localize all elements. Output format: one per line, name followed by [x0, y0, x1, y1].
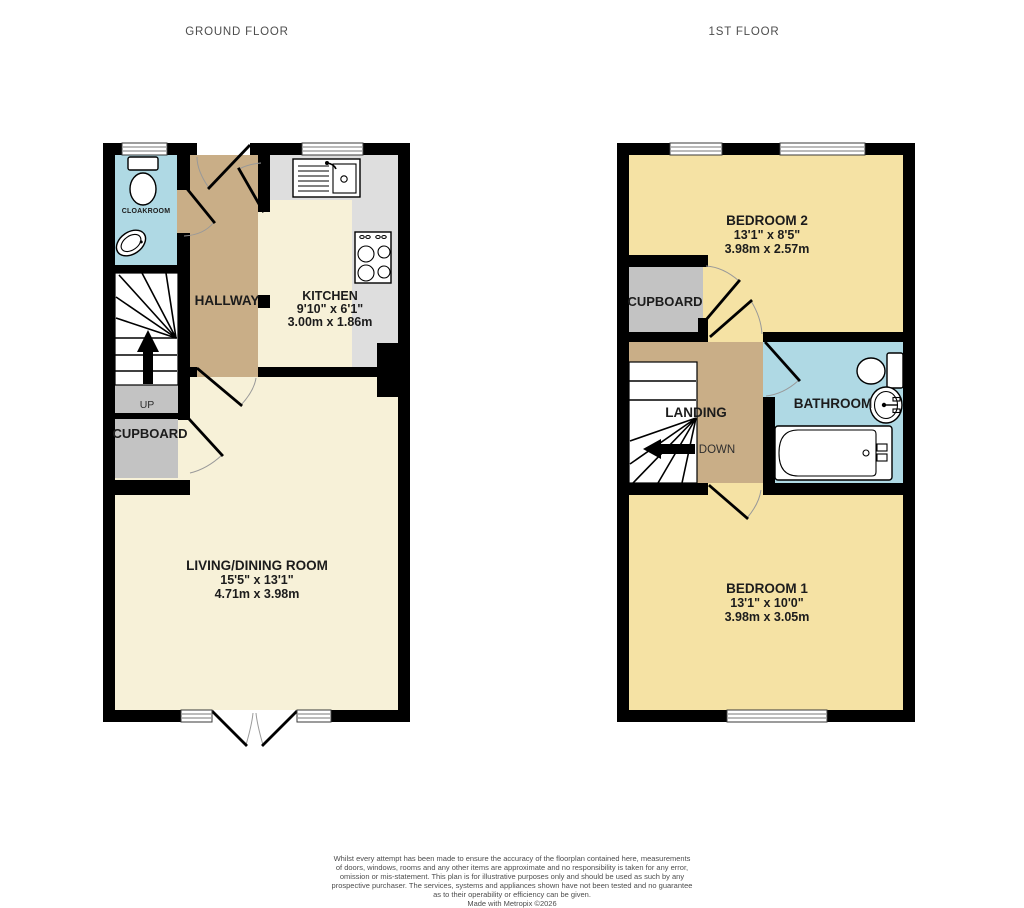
- up-arrow-shaft: [143, 350, 153, 384]
- bedroom2-size-imperial: 13'1" x 8'5": [734, 228, 801, 242]
- living-dining-size-imperial: 15'5" x 13'1": [220, 573, 293, 587]
- disclaimer-line-2: of doors, windows, rooms and any other i…: [336, 863, 688, 872]
- staircase-down: [629, 362, 697, 483]
- floorplan-page: CLOAKROOM HALLWAY KITCHEN 9'10" x 6'1" 3…: [0, 0, 1024, 908]
- window: [122, 143, 167, 155]
- kitchen-sink-icon: [293, 159, 360, 197]
- first-floor-title: 1ST FLOOR: [709, 26, 780, 38]
- gf-stairs: [115, 273, 178, 385]
- cloakroom-doorway-floor: [177, 188, 190, 235]
- living-dining-size-metric: 4.71m x 3.98m: [215, 587, 300, 601]
- credit-line: Made with Metropix ©2026: [467, 899, 556, 908]
- kitchen-size-metric: 3.00m x 1.86m: [288, 315, 373, 329]
- chimney-breast: [377, 343, 398, 397]
- bathtub-icon: [775, 426, 892, 480]
- plan-titles: GROUND FLOOR 1ST FLOOR: [185, 26, 779, 38]
- patio-door-right: [263, 712, 296, 745]
- bathroom-label: BATHROOM: [794, 396, 873, 411]
- kitchen-size-imperial: 9'10" x 6'1": [297, 302, 364, 316]
- bedroom1-size-metric: 3.98m x 3.05m: [725, 610, 810, 624]
- window: [727, 710, 827, 722]
- ground-floor-plan: CLOAKROOM HALLWAY KITCHEN 9'10" x 6'1" 3…: [103, 143, 410, 745]
- hallway-floor: [190, 155, 258, 377]
- disclaimer-line-5: as to their operability or efficiency ca…: [433, 890, 591, 899]
- window: [181, 710, 212, 722]
- hallway-label: HALLWAY: [195, 293, 260, 308]
- disclaimer-footer: Whilst every attempt has been made to en…: [332, 854, 693, 908]
- cooker-icon: [355, 232, 391, 283]
- patio-door-left: [213, 712, 246, 745]
- ground-floor-title: GROUND FLOOR: [185, 26, 289, 38]
- ff-cupboard-label: CUPBOARD: [627, 294, 702, 309]
- disclaimer-line-1: Whilst every attempt has been made to en…: [334, 854, 691, 863]
- window: [297, 710, 331, 722]
- window: [780, 143, 865, 155]
- cloakroom-label: CLOAKROOM: [122, 208, 170, 215]
- bedroom1-size-imperial: 13'1" x 10'0": [730, 596, 803, 610]
- bedroom2-size-metric: 3.98m x 2.57m: [725, 242, 810, 256]
- stairs-up-label: UP: [140, 399, 155, 411]
- ff-stairs: [629, 362, 697, 483]
- disclaimer-line-3: omission or mis-statement. This plan is …: [340, 872, 684, 881]
- stairs-down-label: DOWN: [699, 444, 735, 456]
- window: [302, 143, 363, 155]
- living-dining-label: LIVING/DINING ROOM: [186, 558, 328, 573]
- gf-cupboard-label: CUPBOARD: [112, 426, 187, 441]
- landing-label: LANDING: [665, 405, 727, 420]
- basin-icon: [870, 387, 902, 423]
- disclaimer-line-4: prospective purchaser. The services, sys…: [332, 881, 693, 890]
- down-arrow-shaft: [659, 444, 695, 454]
- window: [670, 143, 722, 155]
- kitchen-label: KITCHEN: [302, 289, 358, 303]
- floorplan-canvas: CLOAKROOM HALLWAY KITCHEN 9'10" x 6'1" 3…: [0, 0, 1024, 908]
- bedroom1-label: BEDROOM 1: [726, 581, 808, 596]
- toilet-icon: [128, 157, 158, 205]
- bedroom2-label: BEDROOM 2: [726, 213, 808, 228]
- first-floor-plan: BEDROOM 2 13'1" x 8'5" 3.98m x 2.57m CUP…: [617, 143, 915, 722]
